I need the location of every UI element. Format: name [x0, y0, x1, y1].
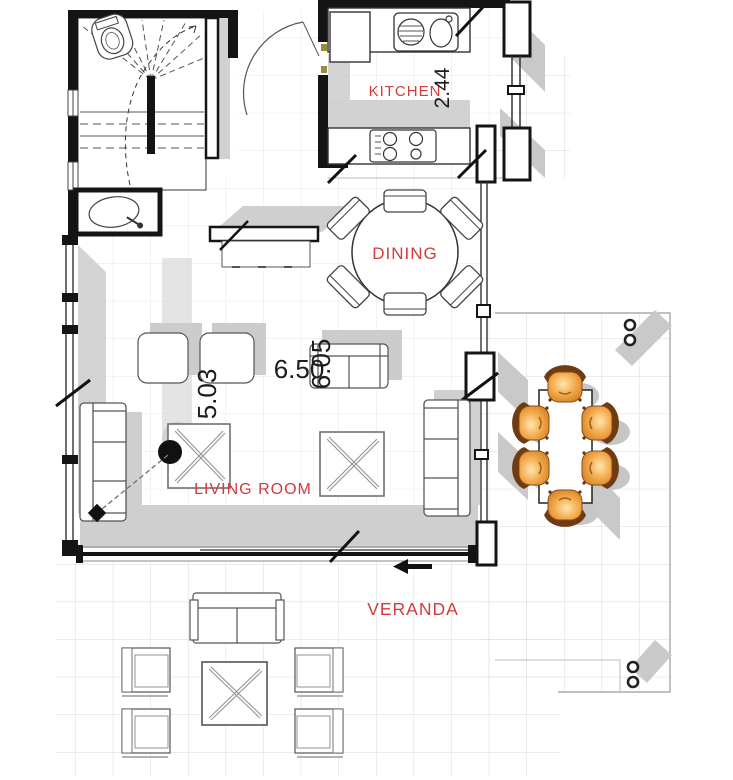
dim-living-depth: 6.05 — [306, 339, 336, 390]
outdoor-armchair — [122, 709, 170, 757]
floor-plan-drawing: KITCHEN DINING LIVING ROOM VERANDA 2.44 … — [0, 0, 733, 780]
coffee-table — [320, 432, 384, 496]
sofa — [424, 400, 470, 516]
floor-plan: KITCHEN DINING LIVING ROOM VERANDA 2.44 … — [0, 0, 733, 780]
dining-chair — [384, 293, 426, 315]
washbasin-room — [76, 190, 160, 235]
dim-living-width: 5.03 — [192, 369, 222, 420]
outdoor-chair — [512, 402, 549, 444]
pouffe — [138, 333, 188, 383]
outdoor-chair — [582, 447, 619, 489]
dining-chair — [384, 190, 426, 212]
pillar — [504, 2, 530, 56]
outdoor-coffee-table — [202, 662, 267, 725]
outdoor-chair — [544, 490, 586, 527]
sofa — [80, 403, 126, 521]
sideboard — [210, 221, 318, 267]
outdoor-chair — [512, 447, 549, 489]
fridge — [330, 12, 370, 62]
stove — [370, 130, 436, 162]
stair-rail — [147, 76, 155, 154]
dining-label: DINING — [372, 244, 438, 263]
dim-kitchen-depth: 2.44 — [431, 67, 454, 108]
outdoor-armchair — [122, 648, 170, 696]
kitchen-sink — [394, 13, 458, 51]
outdoor-armchair — [295, 648, 343, 696]
door-hinge — [321, 44, 327, 51]
outdoor-armchair — [295, 709, 343, 757]
outdoor-chair — [544, 365, 586, 402]
living-room-label: LIVING ROOM — [194, 481, 312, 498]
outdoor-chair — [582, 402, 619, 444]
outdoor-sofa — [190, 593, 284, 643]
veranda-label: VERANDA — [367, 599, 459, 619]
